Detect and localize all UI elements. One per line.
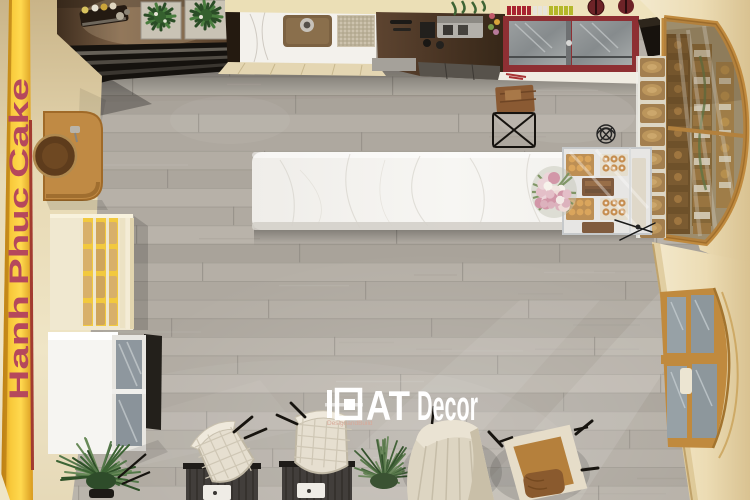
svg-text:Decor: Decor [417, 382, 478, 429]
svg-text:AT: AT [366, 382, 410, 429]
svg-text:Phuc: Phuc [4, 187, 34, 285]
svg-text:Cake: Cake [4, 78, 34, 178]
svg-text:Hanh: Hanh [4, 295, 34, 400]
